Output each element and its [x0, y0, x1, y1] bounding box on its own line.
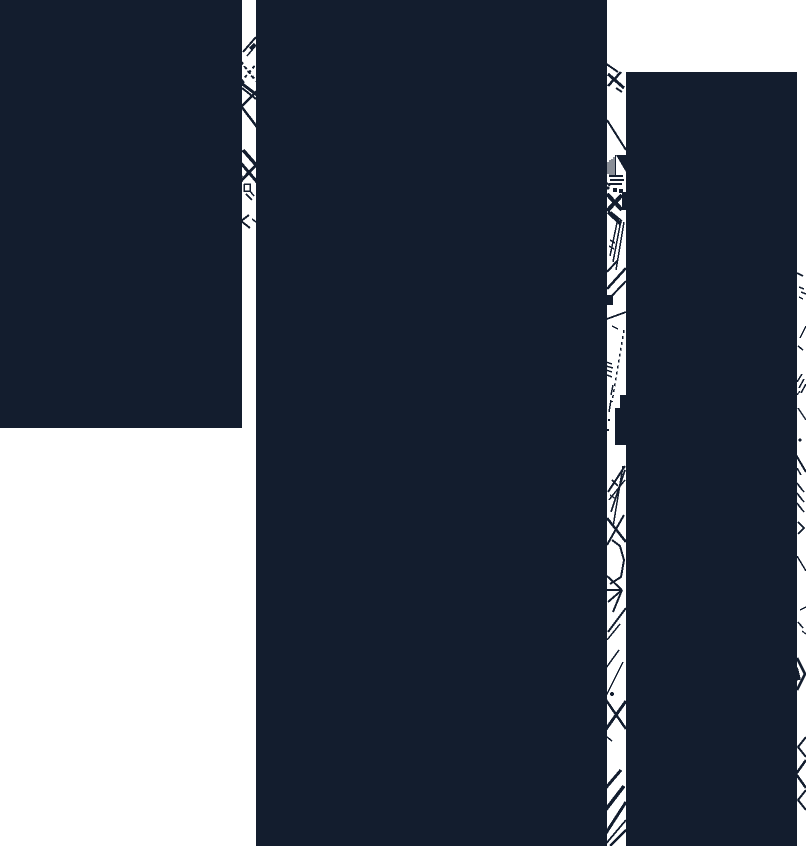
ink-mark [620, 395, 626, 408]
left-block [0, 0, 242, 428]
ink-dot [799, 439, 802, 442]
ink-dot [608, 419, 610, 421]
ink-dot [607, 429, 609, 431]
right-block [626, 72, 797, 846]
middle-block [256, 0, 607, 846]
ink-dot [607, 187, 610, 190]
ink-mark [615, 408, 626, 445]
engraving-fragment [0, 0, 806, 846]
ink-mark [613, 188, 617, 192]
ink-dot [610, 692, 614, 696]
ink-mark [622, 192, 626, 210]
artwork-canvas [0, 0, 806, 846]
